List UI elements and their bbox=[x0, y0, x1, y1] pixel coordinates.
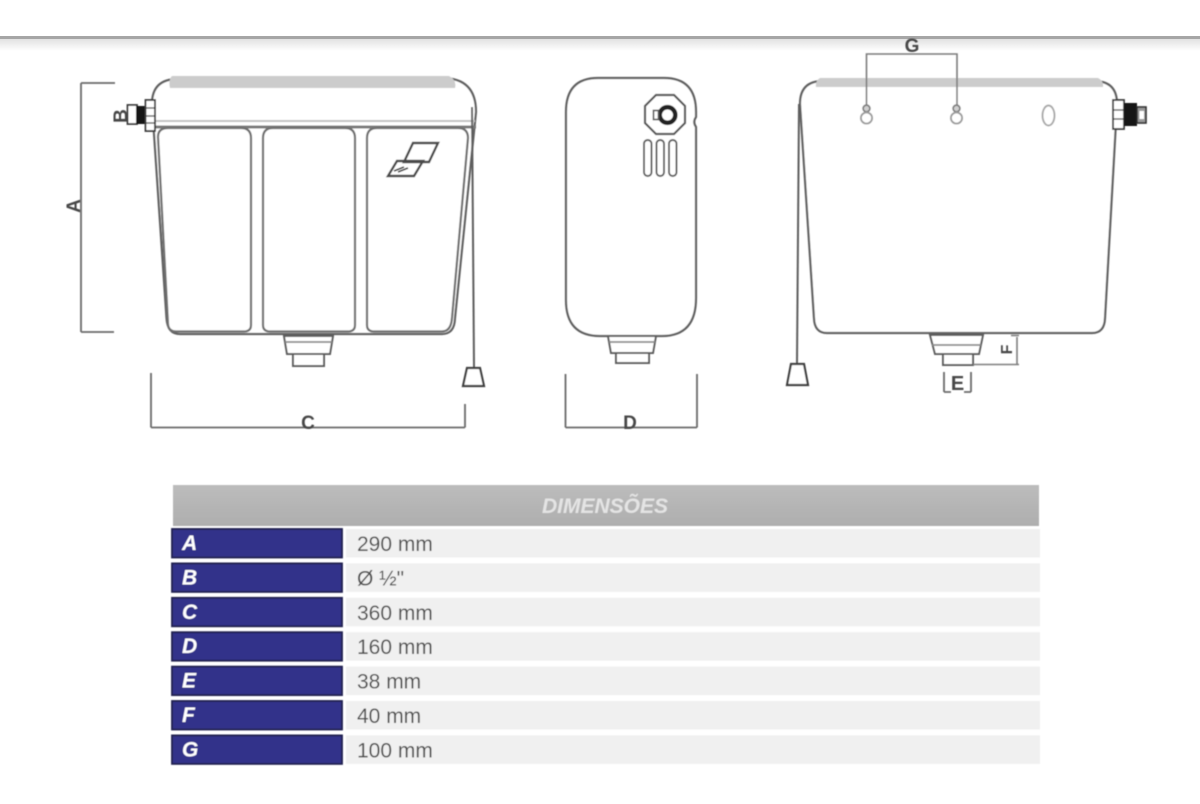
svg-text:160 mm: 160 mm bbox=[357, 636, 433, 659]
svg-text:38 mm: 38 mm bbox=[357, 671, 421, 694]
svg-text:B: B bbox=[111, 109, 132, 123]
svg-text:Ø ½": Ø ½" bbox=[357, 567, 404, 590]
svg-text:F: F bbox=[182, 704, 196, 727]
svg-text:D: D bbox=[623, 413, 637, 434]
svg-text:C: C bbox=[182, 601, 198, 624]
svg-text:290 mm: 290 mm bbox=[357, 533, 433, 556]
svg-text:E: E bbox=[951, 373, 964, 395]
svg-text:G: G bbox=[905, 36, 920, 57]
svg-text:DIMENSÕES: DIMENSÕES bbox=[542, 494, 668, 518]
svg-text:D: D bbox=[182, 635, 197, 658]
svg-text:A: A bbox=[181, 532, 197, 555]
svg-text:B: B bbox=[182, 566, 197, 589]
svg-text:C: C bbox=[301, 413, 315, 434]
svg-text:100 mm: 100 mm bbox=[357, 739, 433, 762]
svg-text:E: E bbox=[182, 670, 197, 693]
svg-text:F: F bbox=[999, 344, 1016, 354]
svg-text:40 mm: 40 mm bbox=[357, 705, 421, 728]
svg-text:360 mm: 360 mm bbox=[357, 602, 433, 625]
svg-text:A: A bbox=[64, 199, 85, 213]
svg-text:G: G bbox=[182, 738, 198, 761]
